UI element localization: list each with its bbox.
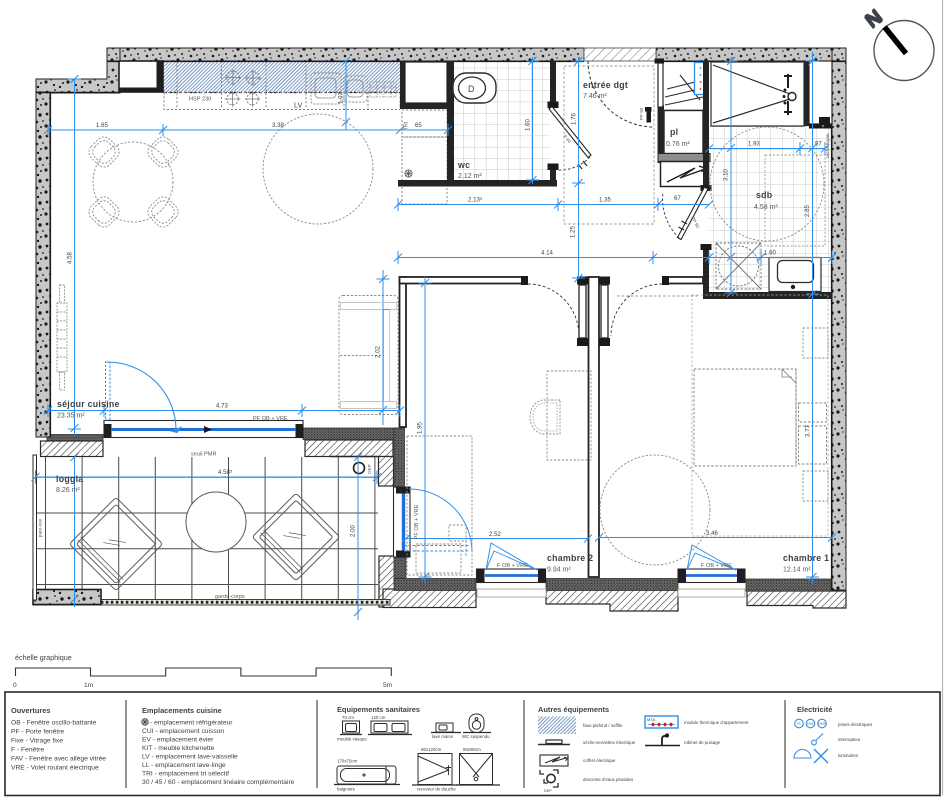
svg-text:F OB + VRE: F OB + VRE	[497, 563, 528, 569]
svg-text:PP 90: PP 90	[639, 107, 644, 120]
svg-text:4.58 m²: 4.58 m²	[754, 204, 778, 211]
svg-text:3.10: 3.10	[723, 168, 730, 180]
svg-text:90x120cm: 90x120cm	[421, 747, 442, 752]
svg-text:luminaires: luminaires	[838, 753, 859, 758]
svg-text:1.65: 1.65	[96, 122, 108, 129]
svg-text:Fixe - Vitrage fixe: Fixe - Vitrage fixe	[11, 738, 63, 745]
svg-text:PF - Porte fenêtre: PF - Porte fenêtre	[11, 729, 64, 736]
svg-text:LL - emplacement lave-linge: LL - emplacement lave-linge	[142, 762, 226, 769]
svg-text:4.58: 4.58	[67, 251, 74, 263]
svg-text:TRI - emplacement tri sélectif: TRI - emplacement tri sélectif	[142, 771, 229, 778]
svg-text:LINGE: LINGE	[818, 722, 826, 726]
svg-text:HSP 230: HSP 230	[189, 97, 211, 103]
svg-text:2.12 m²: 2.12 m²	[458, 173, 482, 180]
svg-text:0.76 m²: 0.76 m²	[666, 141, 690, 148]
svg-text:receveur de douche: receveur de douche	[417, 787, 456, 792]
svg-text:DEP: DEP	[544, 789, 552, 793]
svg-text:LV: LV	[294, 101, 302, 110]
svg-text:3.46: 3.46	[706, 530, 718, 537]
svg-text:1.07: 1.07	[338, 91, 345, 103]
svg-text:échelle graphique: échelle graphique	[15, 653, 72, 662]
svg-text:EV - emplacement évier: EV - emplacement évier	[142, 737, 214, 744]
svg-text:3.38: 3.38	[272, 122, 284, 129]
svg-text:F - Fenêtre: F - Fenêtre	[11, 747, 44, 754]
svg-text:baignoire: baignoire	[337, 787, 356, 792]
svg-text:97: 97	[815, 141, 822, 148]
svg-text:1.95: 1.95	[417, 421, 424, 433]
svg-text:65: 65	[415, 122, 422, 129]
svg-text:entrée dgt: entrée dgt	[583, 80, 628, 90]
svg-text:4.58⁵: 4.58⁵	[218, 469, 233, 476]
svg-text:3.77: 3.77	[805, 424, 812, 436]
svg-text:KIT - meuble kitchenette: KIT - meuble kitchenette	[142, 745, 215, 752]
svg-text:lave mains: lave mains	[432, 734, 454, 739]
svg-text:2.00: 2.00	[350, 524, 357, 536]
svg-text:Autres équipements: Autres équipements	[538, 705, 609, 714]
svg-text:1.60: 1.60	[764, 250, 776, 257]
svg-text:cache tuyau: cache tuyau	[825, 133, 830, 158]
svg-text:67: 67	[674, 195, 681, 202]
svg-text:LV - emplacement lave-vaissell: LV - emplacement lave-vaisselle	[142, 754, 238, 761]
svg-text:170x75cm: 170x75cm	[337, 759, 358, 764]
svg-text:4.14: 4.14	[541, 250, 553, 257]
svg-text:12.14 m²: 12.14 m²	[783, 567, 811, 574]
svg-text:- emplacement réfrigérateur: - emplacement réfrigérateur	[150, 720, 233, 727]
svg-text:CUI - emplacement cuisson: CUI - emplacement cuisson	[142, 728, 224, 735]
svg-text:1.25: 1.25	[570, 225, 577, 237]
svg-text:garde-corps: garde-corps	[215, 594, 245, 600]
svg-text:PC: PC	[797, 722, 801, 726]
svg-text:8.26 m²: 8.26 m²	[56, 487, 80, 494]
svg-text:interrupteur: interrupteur	[838, 737, 861, 742]
svg-text:1.93: 1.93	[748, 141, 760, 148]
svg-text:prises électriques: prises électriques	[838, 722, 873, 727]
svg-text:1.76: 1.76	[571, 112, 578, 124]
svg-text:MTA: MTA	[647, 717, 655, 722]
svg-text:wc: wc	[457, 160, 470, 170]
svg-text:loggia: loggia	[56, 474, 83, 484]
svg-text:Emplacements cuisine: Emplacements cuisine	[142, 706, 222, 715]
svg-text:70 cm: 70 cm	[342, 715, 354, 720]
svg-text:7.46 m²: 7.46 m²	[583, 93, 607, 100]
svg-text:chambre 1: chambre 1	[783, 553, 829, 563]
svg-text:meuble vasque: meuble vasque	[337, 737, 367, 742]
svg-text:90x90cm: 90x90cm	[463, 747, 481, 752]
svg-text:2.13⁵: 2.13⁵	[468, 197, 483, 204]
svg-text:FAV - Fenêtre avec allège vitr: FAV - Fenêtre avec allège vitrée	[11, 756, 106, 763]
svg-text:module thermique d'appartement: module thermique d'appartement	[684, 720, 749, 725]
svg-text:2.52: 2.52	[489, 531, 501, 538]
svg-text:VRE - Volet roulant électrique: VRE - Volet roulant électrique	[11, 765, 99, 772]
svg-text:PF OB + VRE: PF OB + VRE	[414, 504, 420, 539]
svg-text:120 cm: 120 cm	[371, 715, 386, 720]
svg-text:robinet de puisage: robinet de puisage	[684, 740, 721, 745]
svg-text:sèche-serviettes électrique: sèche-serviettes électrique	[583, 740, 636, 745]
svg-text:30 / 45 / 60 - emplacement lin: 30 / 45 / 60 - emplacement linéaire comp…	[142, 779, 295, 786]
svg-text:Ouvertures: Ouvertures	[11, 706, 50, 715]
svg-text:LAVE: LAVE	[807, 722, 814, 726]
svg-text:4.73: 4.73	[216, 403, 228, 410]
svg-text:Equipements sanitaires: Equipements sanitaires	[337, 705, 420, 714]
svg-text:1.60: 1.60	[525, 118, 532, 130]
svg-text:9.94 m²: 9.94 m²	[547, 567, 571, 574]
svg-text:chambre 2: chambre 2	[547, 553, 593, 563]
svg-text:descente d'eaux pluviales: descente d'eaux pluviales	[583, 777, 634, 782]
svg-text:coffret électrique: coffret électrique	[583, 758, 616, 763]
svg-text:0: 0	[13, 682, 17, 689]
svg-text:Electricité: Electricité	[797, 705, 832, 714]
svg-text:1m: 1m	[84, 682, 94, 689]
svg-text:23.35 m²: 23.35 m²	[57, 413, 85, 420]
svg-text:TRI: TRI	[404, 121, 410, 130]
svg-text:PF OB + VRE: PF OB + VRE	[253, 416, 288, 422]
svg-text:DEP: DEP	[367, 464, 372, 473]
svg-text:2.02: 2.02	[375, 345, 382, 357]
svg-text:WC suspendu: WC suspendu	[462, 734, 490, 739]
svg-text:pl: pl	[670, 127, 678, 137]
svg-text:pare-vue: pare-vue	[38, 518, 43, 537]
svg-text:D: D	[468, 84, 475, 94]
svg-text:2.85: 2.85	[804, 204, 811, 216]
svg-text:séjour cuisine: séjour cuisine	[57, 399, 120, 409]
svg-text:OB - Fenêtre oscillo-battante: OB - Fenêtre oscillo-battante	[11, 720, 97, 727]
svg-text:5m: 5m	[383, 682, 393, 689]
svg-text:sdb: sdb	[756, 190, 773, 200]
svg-text:1.35: 1.35	[599, 197, 611, 204]
svg-text:faux-plafond / soffite: faux-plafond / soffite	[583, 723, 623, 728]
svg-text:seuil PMR: seuil PMR	[191, 452, 217, 458]
svg-text:F OB + VRE: F OB + VRE	[701, 563, 732, 569]
